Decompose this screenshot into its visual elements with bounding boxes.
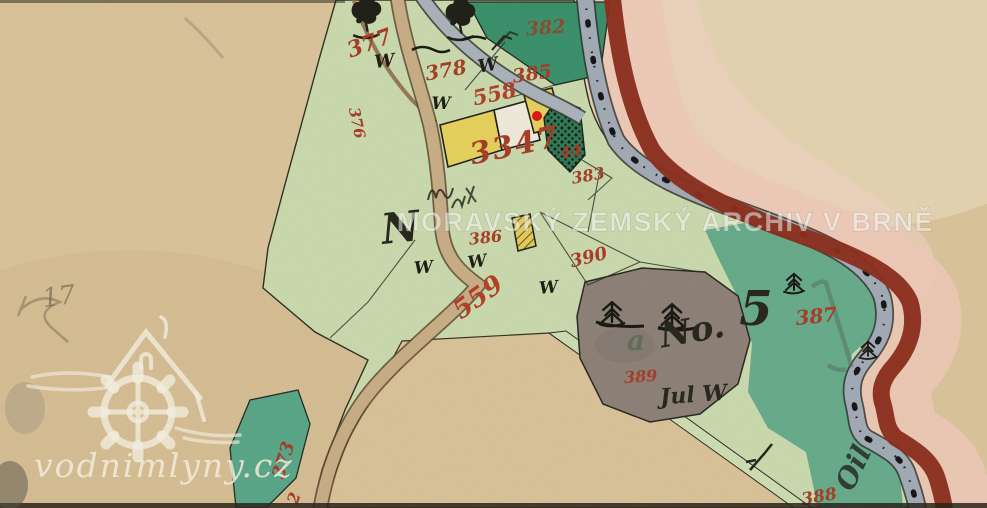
map-canvas[interactable]: 377 378 382 385 558 3347 44 383 376 386 … [0, 0, 987, 508]
historic-cadastral-map-view: 377 378 382 385 558 3347 44 383 376 386 … [0, 0, 987, 508]
paper-grain-overlay [0, 0, 987, 508]
